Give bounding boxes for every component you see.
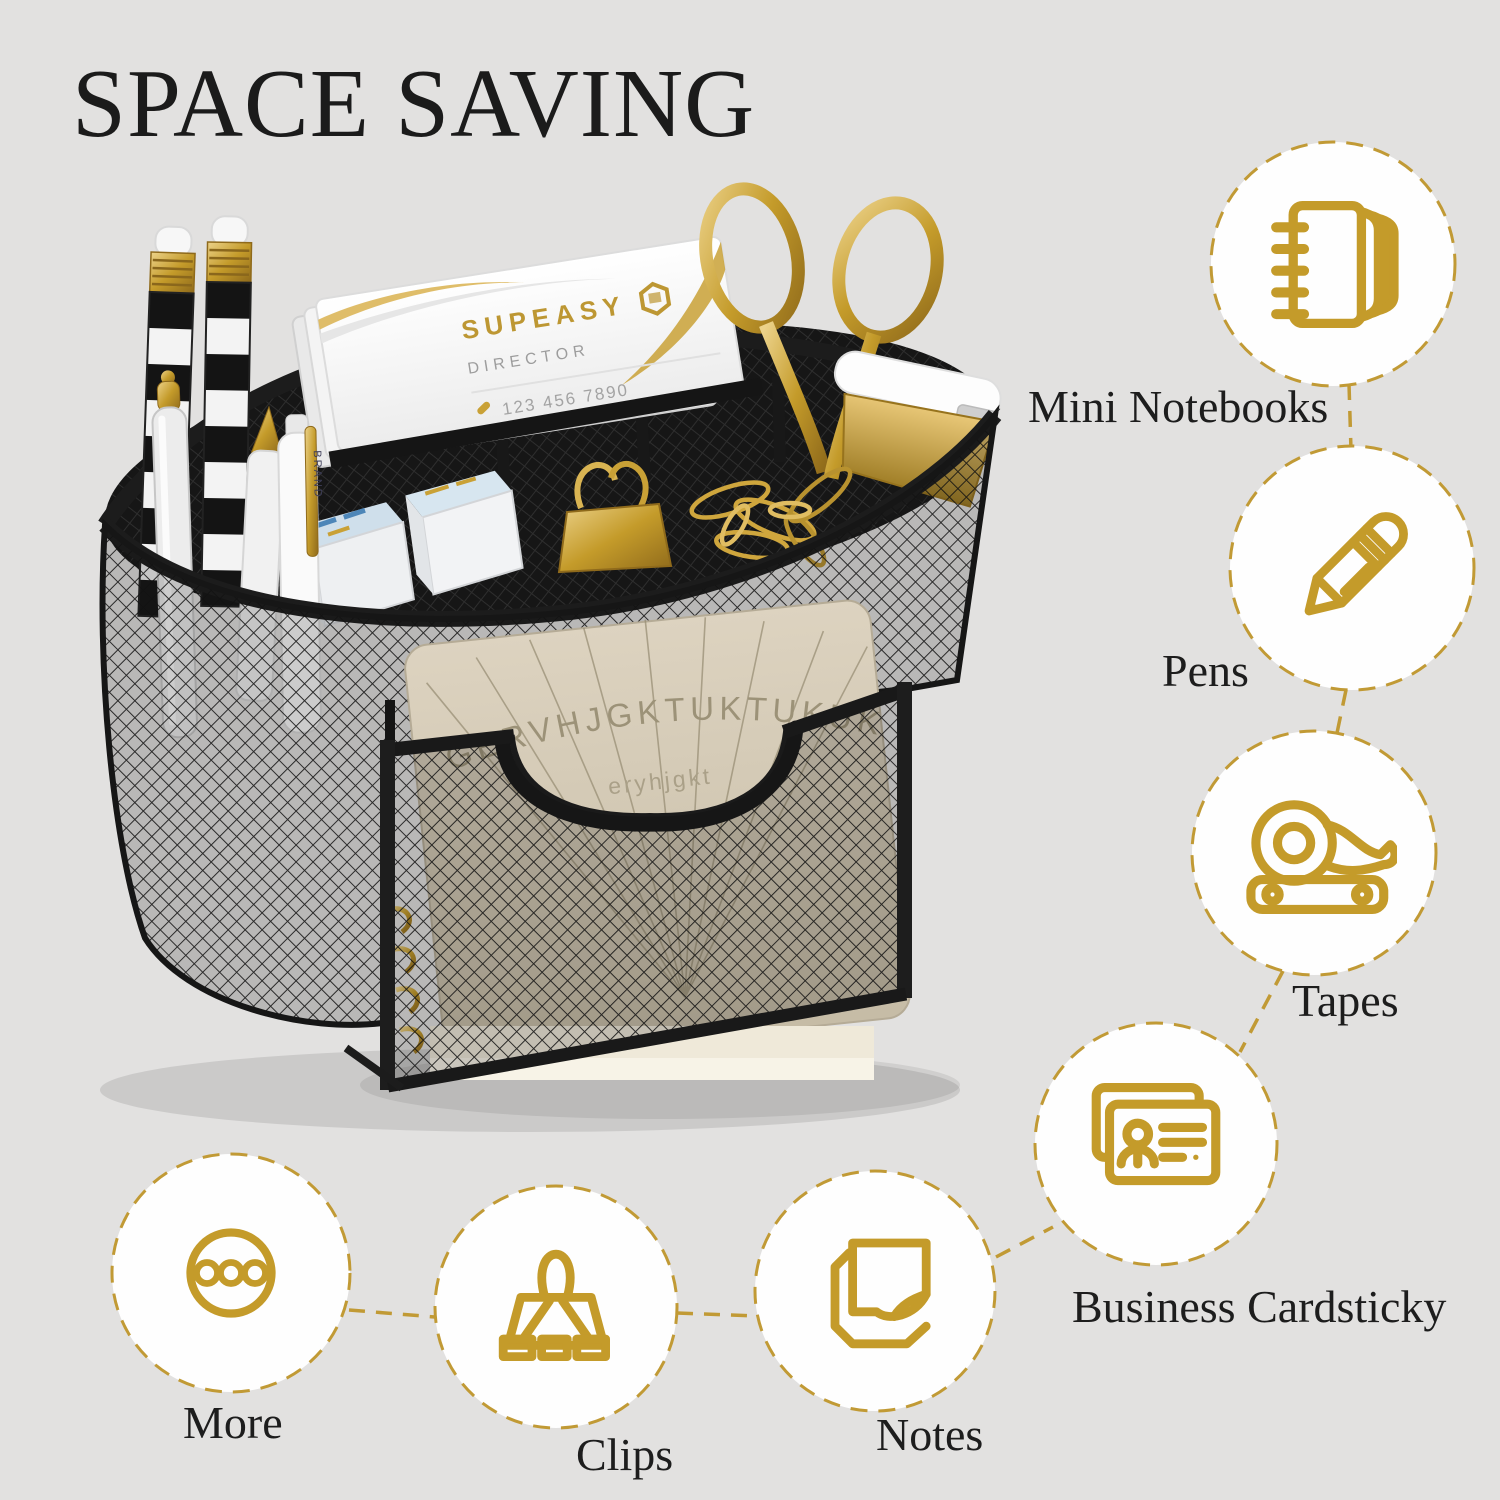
more-feature xyxy=(156,1198,306,1348)
connector-pens-tapes xyxy=(1337,690,1346,733)
product-photo: SUPEASY DIRECTOR 123 456 7890 xyxy=(50,140,1040,1160)
feature-label-mini-notebooks: Mini Notebooks xyxy=(1028,384,1328,430)
feature-label-more: More xyxy=(183,1400,283,1446)
connector-clips-notes xyxy=(677,1313,756,1316)
tape-dispenser-icon xyxy=(1231,770,1397,936)
binder-clip-icon xyxy=(476,1227,636,1387)
page: SPACE SAVING xyxy=(0,0,1500,1500)
connector-more-clips xyxy=(349,1310,435,1317)
sticky-notes-icon xyxy=(795,1211,955,1371)
business-cards-icon xyxy=(1073,1061,1239,1227)
connector-tapes-cards xyxy=(1240,971,1283,1052)
notebook-icon xyxy=(1256,187,1411,342)
connector-notes-cards xyxy=(996,1227,1053,1257)
feature-label-pens: Pens xyxy=(1162,648,1249,694)
notes-feature xyxy=(795,1211,955,1371)
connector-notebooks-pens xyxy=(1349,384,1351,450)
feature-label-tapes: Tapes xyxy=(1292,978,1399,1024)
drawer-right-post xyxy=(897,682,912,998)
business-cardsticky-feature xyxy=(1073,1061,1239,1227)
clips-feature xyxy=(476,1227,636,1387)
pen-clip-text: BRAND xyxy=(311,450,324,499)
mini-notebooks-feature xyxy=(1256,187,1411,342)
tapes-feature xyxy=(1231,770,1397,936)
feature-label-clips: Clips xyxy=(576,1432,673,1478)
more-dots-icon xyxy=(156,1198,306,1348)
pens-feature xyxy=(1272,488,1432,648)
drawer-left-post xyxy=(380,740,395,1090)
feature-label-business-cardsticky: Business Cardsticky xyxy=(1072,1284,1446,1330)
feature-label-notes: Notes xyxy=(876,1412,983,1458)
pencil-icon xyxy=(1272,488,1432,648)
